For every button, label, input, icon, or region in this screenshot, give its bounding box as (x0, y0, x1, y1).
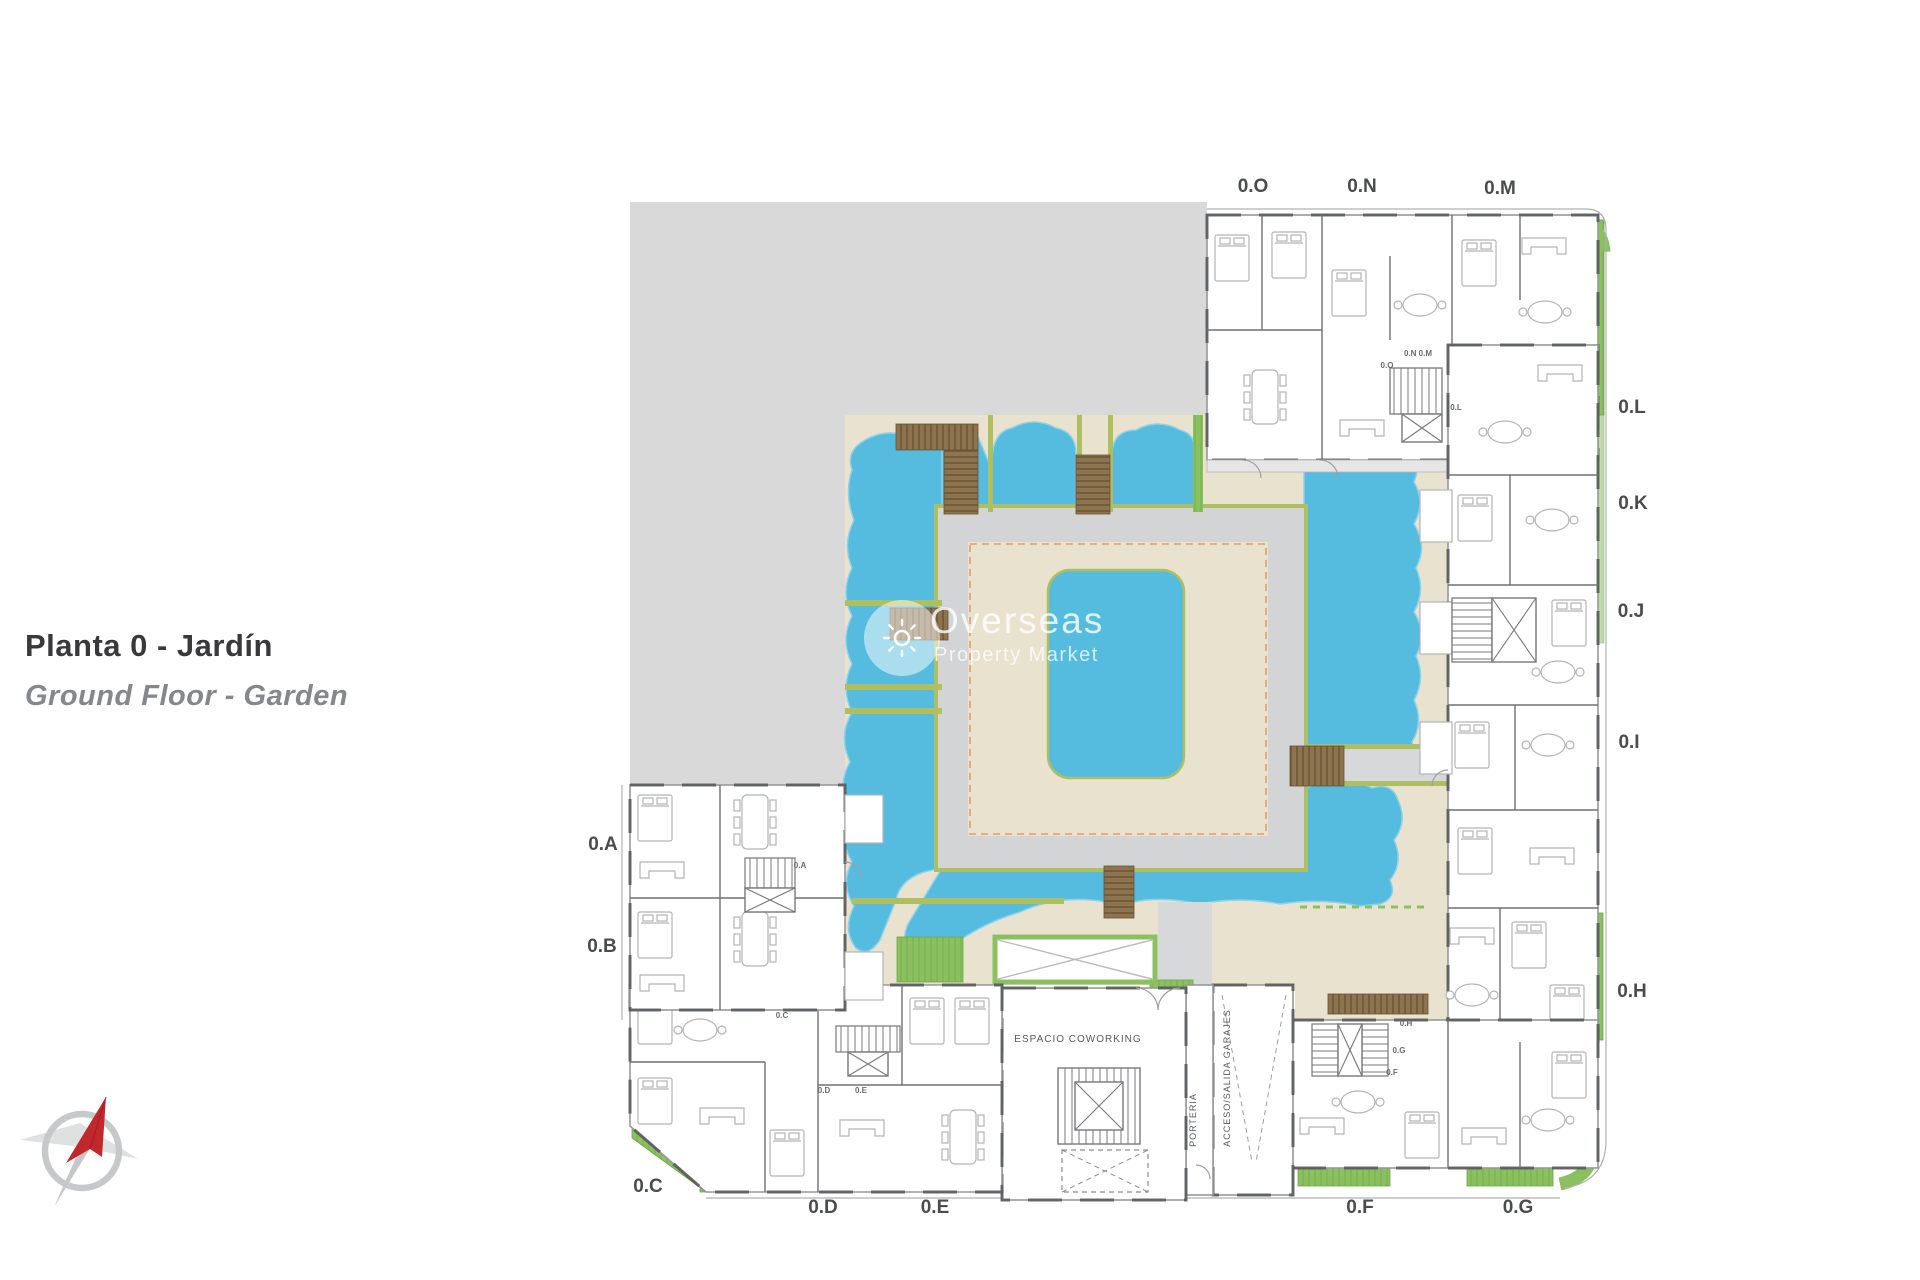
unit-label-0D: 0.D (808, 1197, 838, 1218)
core-coworking (1002, 988, 1186, 1200)
unit-label-0J: 0.J (1618, 601, 1644, 622)
unit-label-0K: 0.K (1618, 493, 1648, 514)
floor-plan-drawing: 0.O 0.N 0.M 0.L 0.K 0.J 0.I 0.H 0.G 0.F … (0, 0, 1920, 1280)
door-tag-0A: 0.A (794, 861, 807, 870)
unit-label-0I: 0.I (1618, 732, 1639, 753)
door-tag-0L: 0.L (1450, 403, 1462, 412)
unit-block-left-column (630, 785, 883, 1010)
unit-label-0B: 0.B (587, 936, 617, 957)
door-tag-0F: 0.F (1386, 1068, 1398, 1077)
door-tag-0G: 0.G (1393, 1046, 1406, 1055)
door-tag-0D: 0.D (818, 1086, 831, 1095)
unit-label-0G: 0.G (1503, 1197, 1534, 1218)
unit-label-0E: 0.E (921, 1197, 950, 1218)
core-stair-bottom-right (1312, 1024, 1388, 1076)
unit-label-0F: 0.F (1346, 1197, 1373, 1218)
unit-label-0M: 0.M (1484, 178, 1516, 199)
door-tag-0O: 0.O (1381, 361, 1394, 370)
unit-label-0L: 0.L (1618, 397, 1646, 418)
coworking-pergola (995, 937, 1155, 982)
unit-label-0A: 0.A (588, 834, 618, 855)
door-tag-0C: 0.C (776, 1011, 789, 1020)
unit-label-0H: 0.H (1617, 981, 1647, 1002)
room-label-garage: ACCESO/SALIDA GARAJES (1222, 1009, 1232, 1147)
unit-label-0C: 0.C (633, 1176, 663, 1197)
core-concierge (1186, 985, 1213, 1195)
unit-label-0O: 0.O (1238, 176, 1269, 197)
unit-label-0N: 0.N (1347, 176, 1377, 197)
unit-block-bottom-left (630, 985, 1002, 1192)
central-pool-platform (936, 506, 1306, 870)
room-label-concierge: PORTERIA (1188, 1093, 1198, 1147)
compass-icon (20, 1097, 138, 1207)
central-pool (1048, 570, 1184, 778)
door-tag-0E: 0.E (855, 1086, 868, 1095)
door-tag-0H: 0.H (1400, 1019, 1413, 1028)
floor-plan-page: Planta 0 - Jardín Ground Floor - Garden (0, 0, 1920, 1280)
door-tag-0N-0M: 0.N 0.M (1404, 349, 1432, 358)
room-label-coworking: ESPACIO COWORKING (1014, 1034, 1141, 1045)
core-stair-right (1452, 598, 1536, 662)
